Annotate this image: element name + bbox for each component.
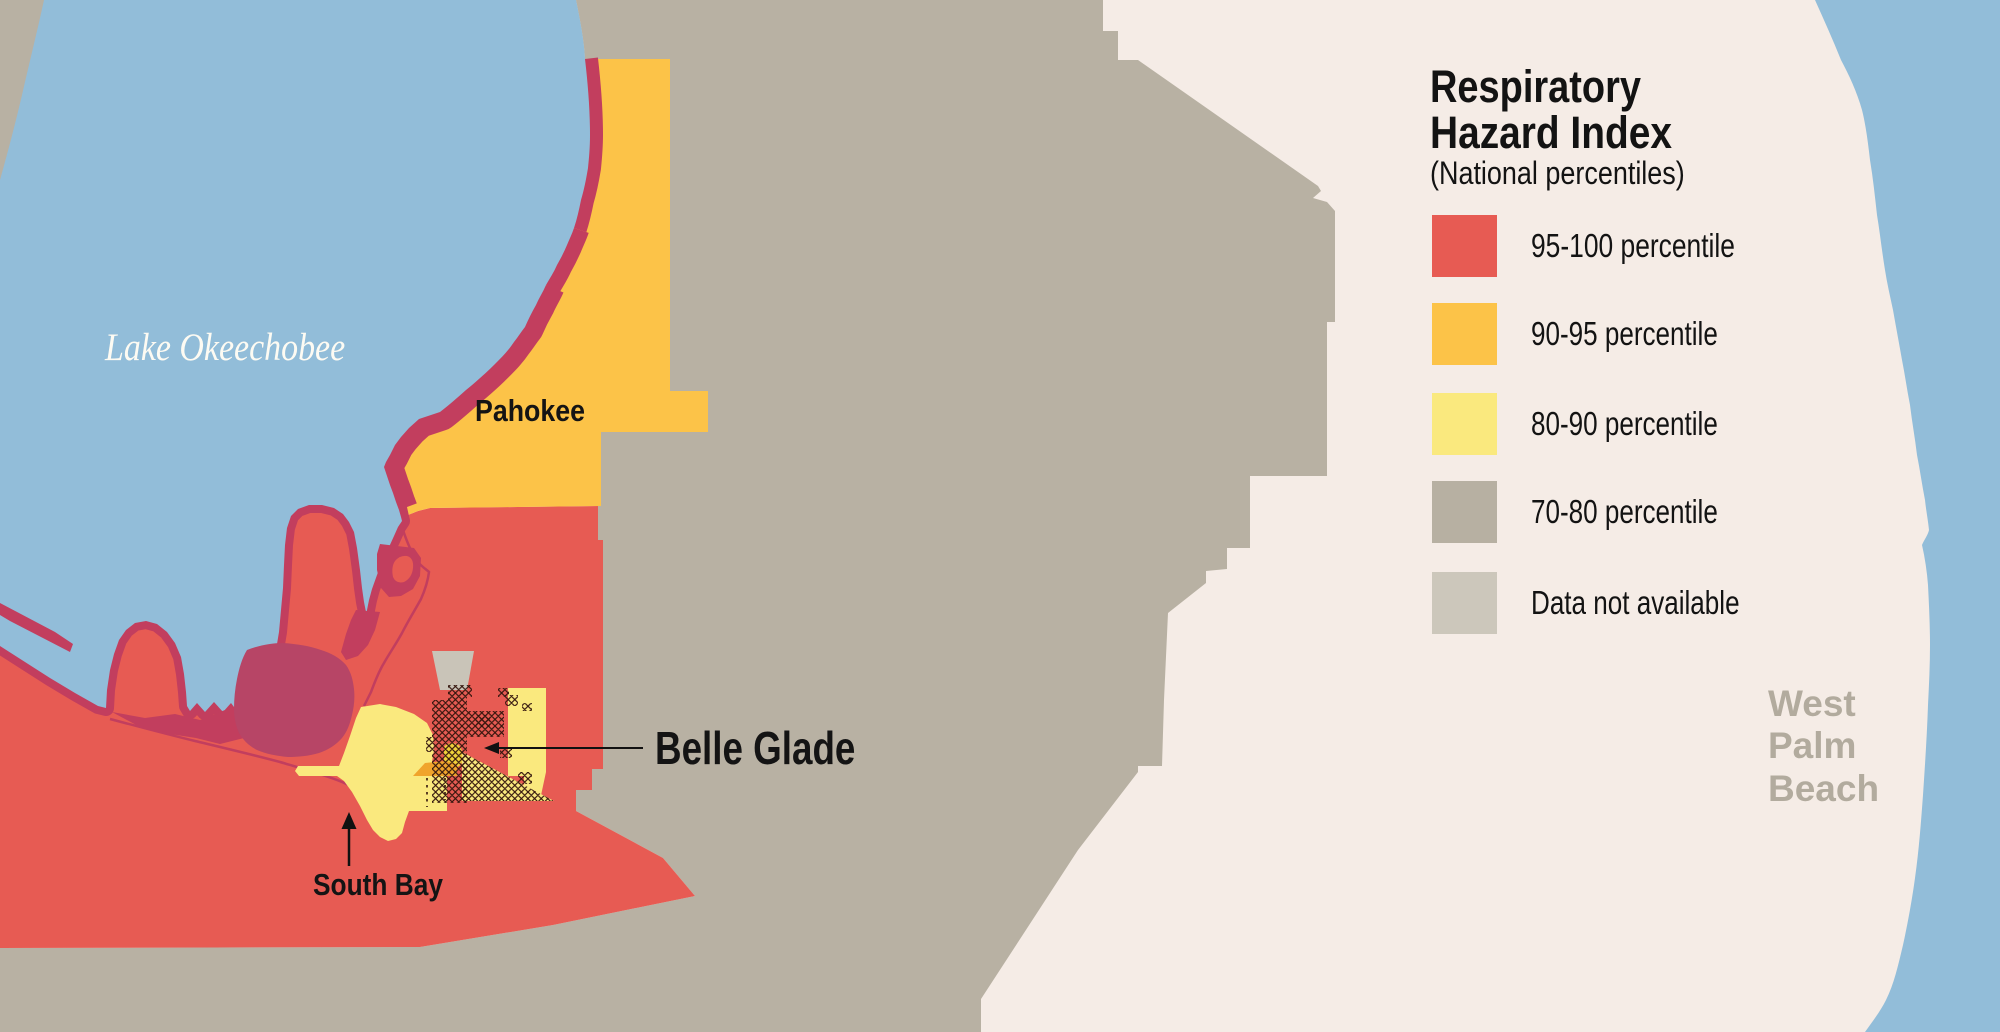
svg-text:Hazard Index: Hazard Index <box>1430 107 1673 157</box>
svg-text:West: West <box>1768 683 1856 724</box>
svg-text:Data not available: Data not available <box>1531 585 1740 622</box>
svg-text:Respiratory: Respiratory <box>1430 61 1641 112</box>
svg-text:Beach: Beach <box>1768 768 1879 809</box>
svg-text:Belle Glade: Belle Glade <box>655 722 855 774</box>
svg-text:Palm: Palm <box>1768 725 1856 766</box>
svg-text:70-80 percentile: 70-80 percentile <box>1531 494 1718 531</box>
svg-text:South Bay: South Bay <box>313 868 443 903</box>
svg-text:80-90 percentile: 80-90 percentile <box>1531 406 1718 443</box>
svg-text:Pahokee: Pahokee <box>475 394 585 428</box>
svg-text:Lake Okeechobee: Lake Okeechobee <box>104 325 345 369</box>
svg-text:(National percentiles): (National percentiles) <box>1430 156 1685 192</box>
svg-text:90-95 percentile: 90-95 percentile <box>1531 316 1718 353</box>
svg-text:95-100 percentile: 95-100 percentile <box>1531 228 1735 264</box>
